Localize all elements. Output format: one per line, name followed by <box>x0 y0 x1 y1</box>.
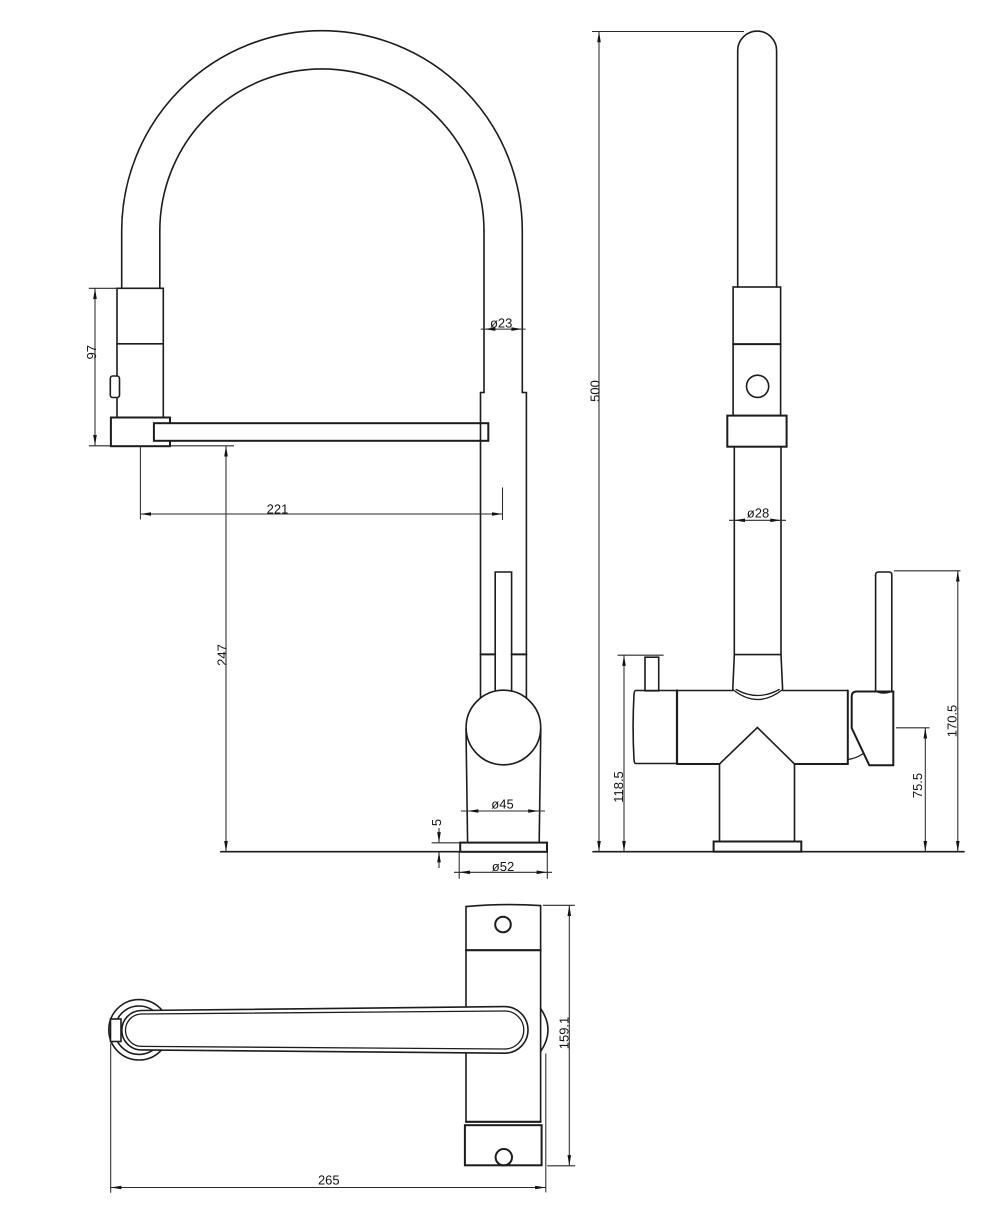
svg-text:221: 221 <box>267 502 289 517</box>
svg-text:170.5: 170.5 <box>945 705 960 738</box>
svg-text:265: 265 <box>318 1173 340 1188</box>
svg-text:ø45: ø45 <box>491 797 513 812</box>
svg-text:ø28: ø28 <box>747 506 769 521</box>
svg-text:97: 97 <box>84 345 99 359</box>
svg-text:5: 5 <box>429 819 444 826</box>
svg-text:118.5: 118.5 <box>611 771 626 803</box>
svg-text:159.1: 159.1 <box>556 1017 571 1050</box>
svg-text:ø52: ø52 <box>492 859 514 874</box>
svg-text:500: 500 <box>588 380 603 402</box>
svg-text:75.5: 75.5 <box>910 773 925 798</box>
svg-text:ø23: ø23 <box>490 316 512 331</box>
svg-text:247: 247 <box>215 644 230 666</box>
